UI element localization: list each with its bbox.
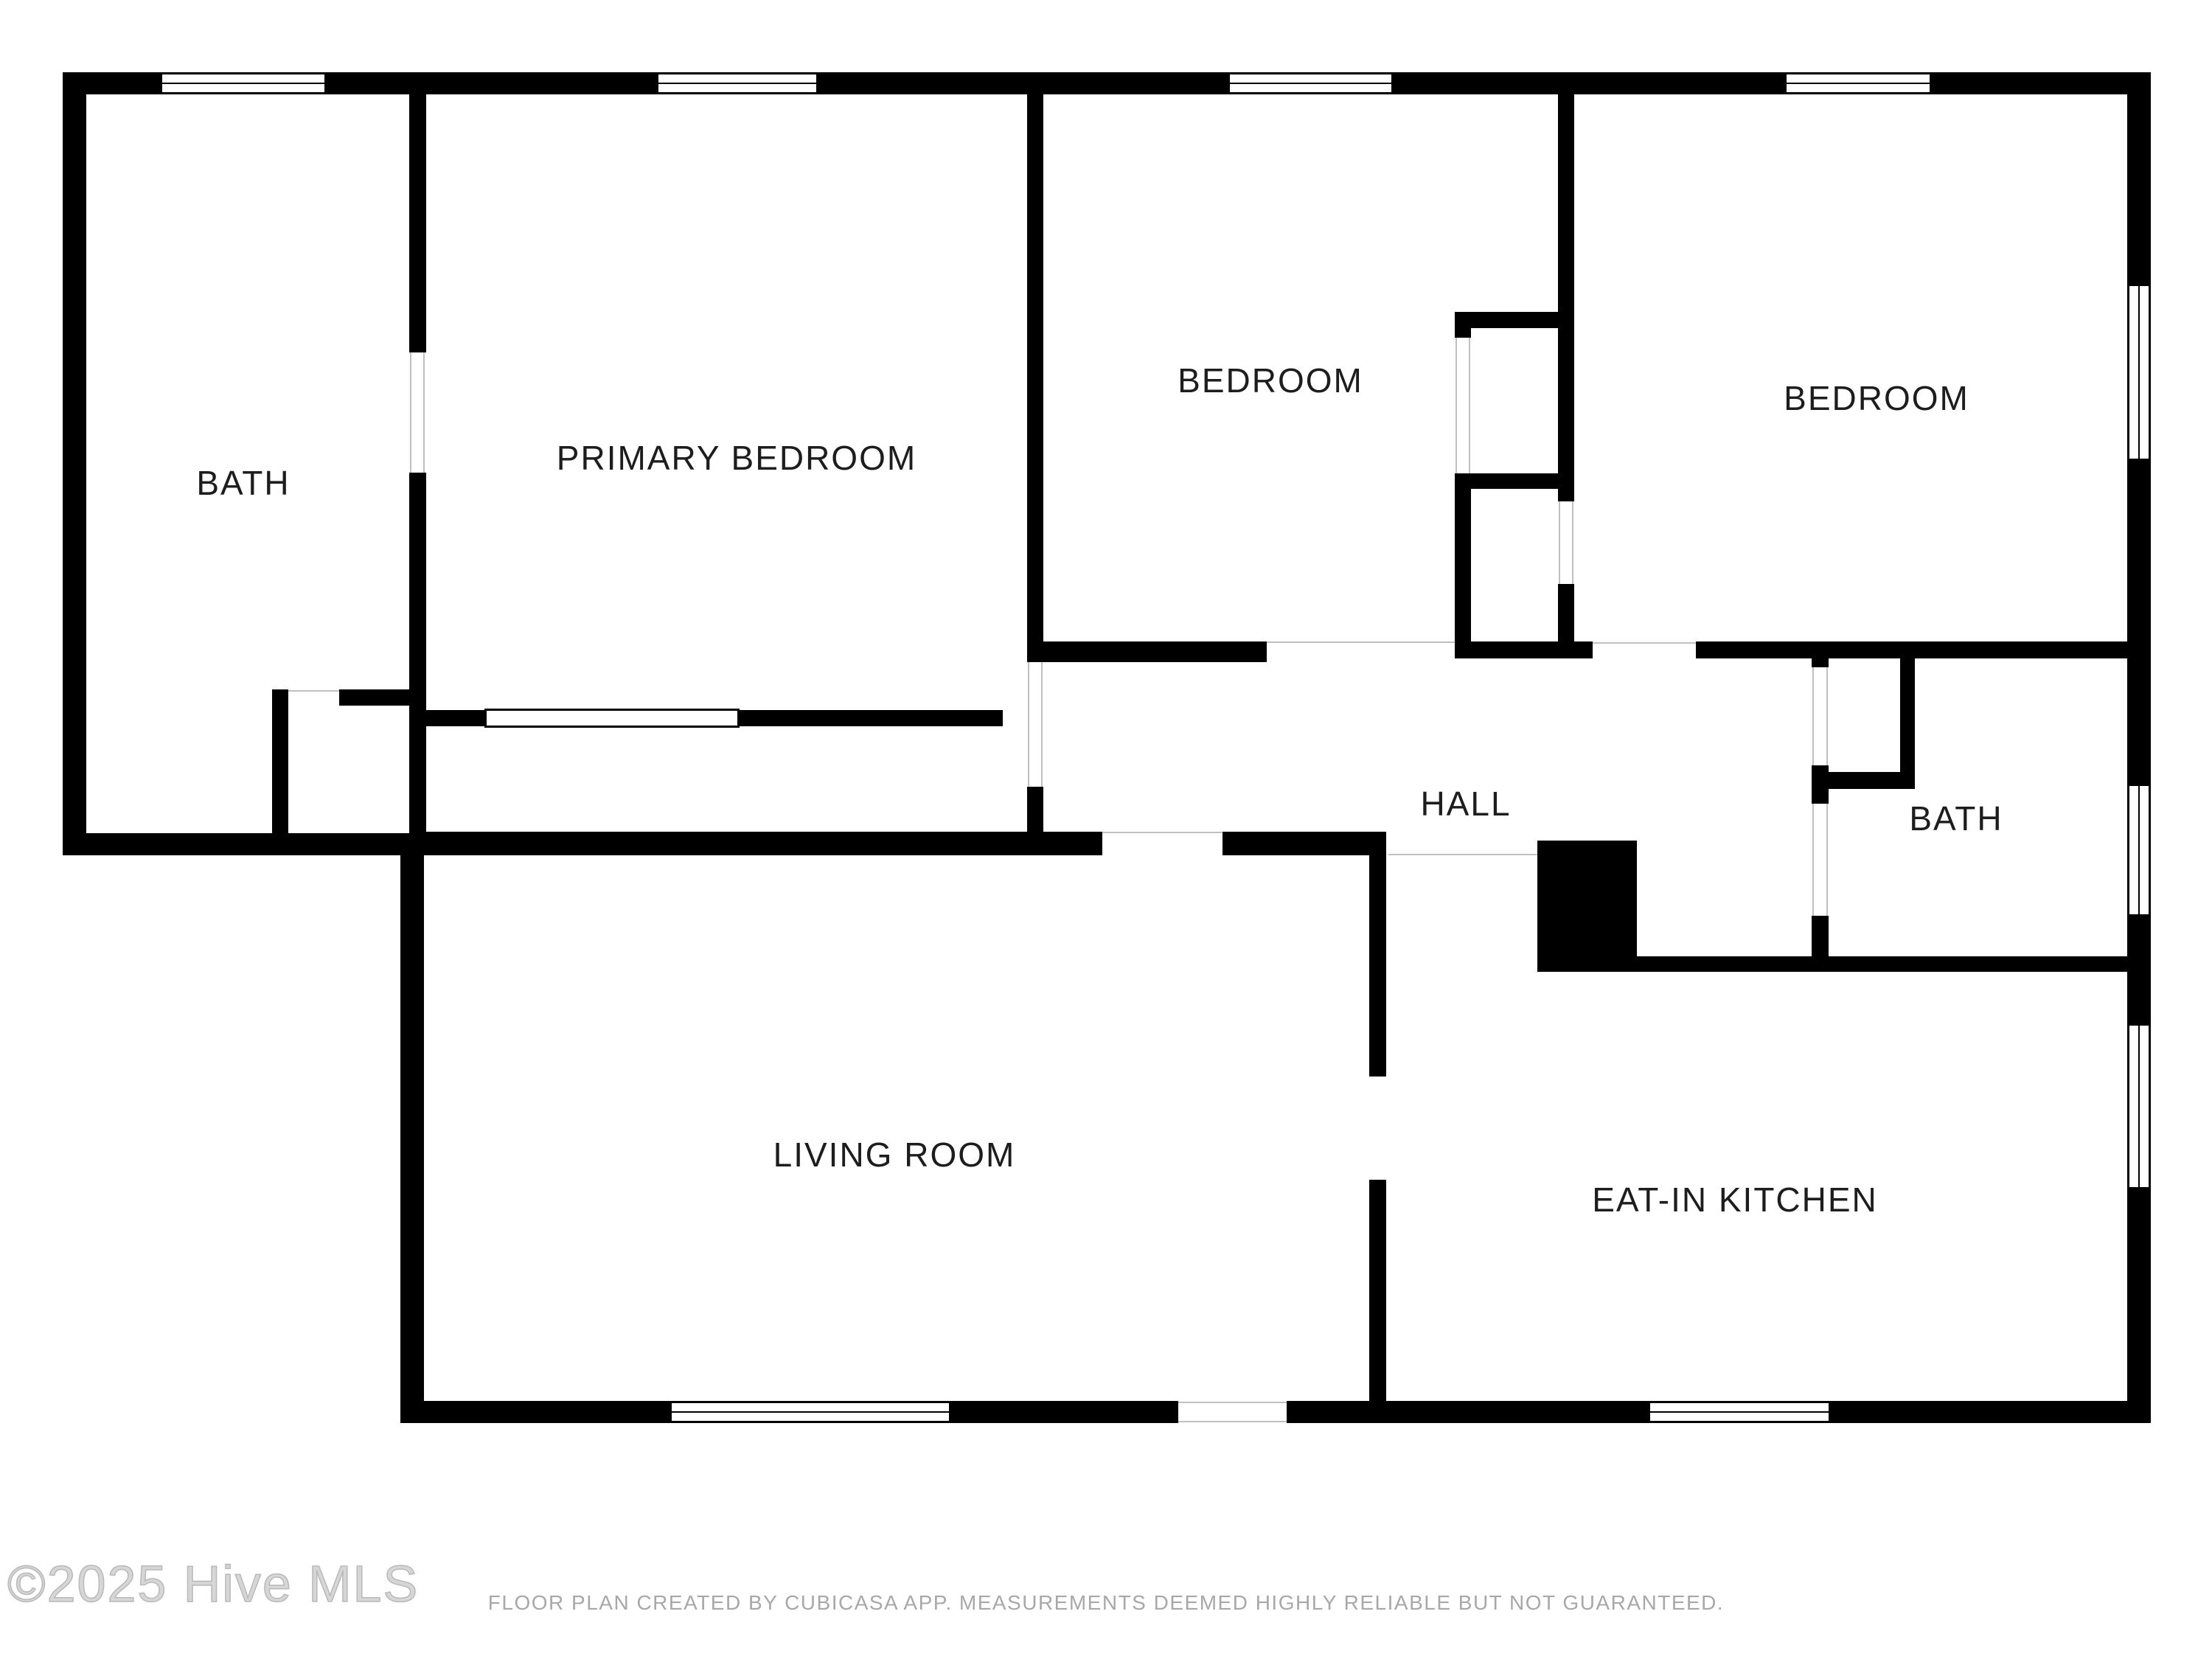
front-door-line2	[1178, 1421, 1287, 1422]
living-hall-opening-line	[1102, 832, 1222, 833]
wall-primary-bottom-west	[426, 710, 484, 726]
wall-bath-primary-upper	[409, 94, 426, 352]
disclaimer-text: FLOOR PLAN CREATED BY CUBICASA APP. MEAS…	[0, 1591, 2212, 1615]
wall-bath2-west-a	[1812, 658, 1829, 667]
window-kitchen-bottom	[1648, 1401, 1831, 1423]
chimney-stair-block	[1537, 841, 1637, 972]
wall-closet-col-left-stub	[1455, 312, 1471, 338]
window-bedroom-middle-top	[1228, 72, 1394, 94]
wall-living-kitchen-lower	[1369, 1180, 1386, 1423]
window-primary-top	[656, 72, 818, 94]
hall-kitchen-opening-line	[1388, 854, 1537, 855]
closet-doors-primary	[484, 709, 740, 728]
window-bath-left-top	[160, 72, 327, 94]
bath-left-door-line-b	[423, 352, 425, 473]
right-bedroom-door-line	[1593, 642, 1696, 644]
middle-bedroom-door-line	[1267, 641, 1455, 643]
closet-bot-door-line-a	[1559, 501, 1560, 584]
closet-top-door-line-a	[1455, 338, 1457, 473]
bath-closet-door-line	[288, 690, 339, 692]
wall-middle-bedroom-bottom	[1027, 641, 1267, 662]
wall-exterior-left	[63, 72, 86, 855]
room-label-bath-left: BATH	[196, 463, 290, 503]
window-living-bottom	[669, 1401, 951, 1423]
wall-closet-col-left-dn	[1455, 473, 1471, 658]
wall-closet-col-top	[1455, 312, 1574, 328]
wall-closet-col-right-up	[1558, 94, 1574, 501]
front-door-line	[1178, 1402, 1287, 1403]
vestibule-door-line-a	[1812, 667, 1814, 765]
window-kitchen-side	[2127, 1023, 2151, 1189]
floor-plan: BATH PRIMARY BEDROOM BEDROOM BEDROOM HAL…	[0, 0, 2212, 1659]
wall-bath-block-bottom	[63, 833, 424, 855]
window-bedroom-right-side	[2127, 284, 2151, 461]
wall-bath2-vest-bottom	[1829, 772, 1915, 789]
wall-primary-middle-upper	[1027, 94, 1043, 662]
wall-living-top-west	[424, 832, 1102, 855]
closet-top-door-line-b	[1469, 338, 1470, 473]
primary-door-line-a	[1028, 662, 1029, 787]
room-label-bedroom-middle: BEDROOM	[1178, 361, 1363, 400]
room-label-hall: HALL	[1420, 784, 1511, 824]
closet-bot-door-line-b	[1572, 501, 1573, 584]
wall-bath-closet-side	[272, 689, 288, 833]
wall-living-left	[400, 833, 424, 1423]
room-label-eat-in-kitchen: EAT-IN KITCHEN	[1592, 1180, 1878, 1220]
primary-door-line-b	[1041, 662, 1043, 787]
front-door-opening	[1178, 1401, 1287, 1423]
room-label-bedroom-right: BEDROOM	[1784, 378, 1969, 418]
bath-right-door-line-b	[1826, 804, 1828, 916]
window-bath-right-side	[2127, 784, 2151, 917]
window-bedroom-right-top	[1784, 72, 1932, 94]
wall-bath-primary-lower	[409, 473, 426, 833]
wall-hall-top-east	[1696, 641, 2127, 658]
wall-living-top-east	[1222, 832, 1371, 855]
wall-primary-bottom-east	[740, 710, 1003, 726]
room-label-bath-right: BATH	[1909, 799, 2003, 838]
bath-left-door-line-a	[410, 352, 411, 473]
wall-bath2-vest-side	[1900, 658, 1915, 772]
bath-right-door-line-a	[1812, 804, 1814, 916]
room-label-primary-bedroom: PRIMARY BEDROOM	[557, 438, 917, 478]
room-label-living-room: LIVING ROOM	[773, 1135, 1016, 1175]
wall-bath-closet-top	[339, 689, 426, 706]
wall-hall-top-west	[1455, 641, 1593, 658]
wall-living-kitchen-upper	[1369, 832, 1386, 1077]
wall-closet-col-mid	[1455, 473, 1561, 489]
wall-exterior-right	[2127, 72, 2151, 1423]
vestibule-door-line-b	[1826, 667, 1828, 765]
wall-bath2-west-b	[1812, 765, 1829, 804]
